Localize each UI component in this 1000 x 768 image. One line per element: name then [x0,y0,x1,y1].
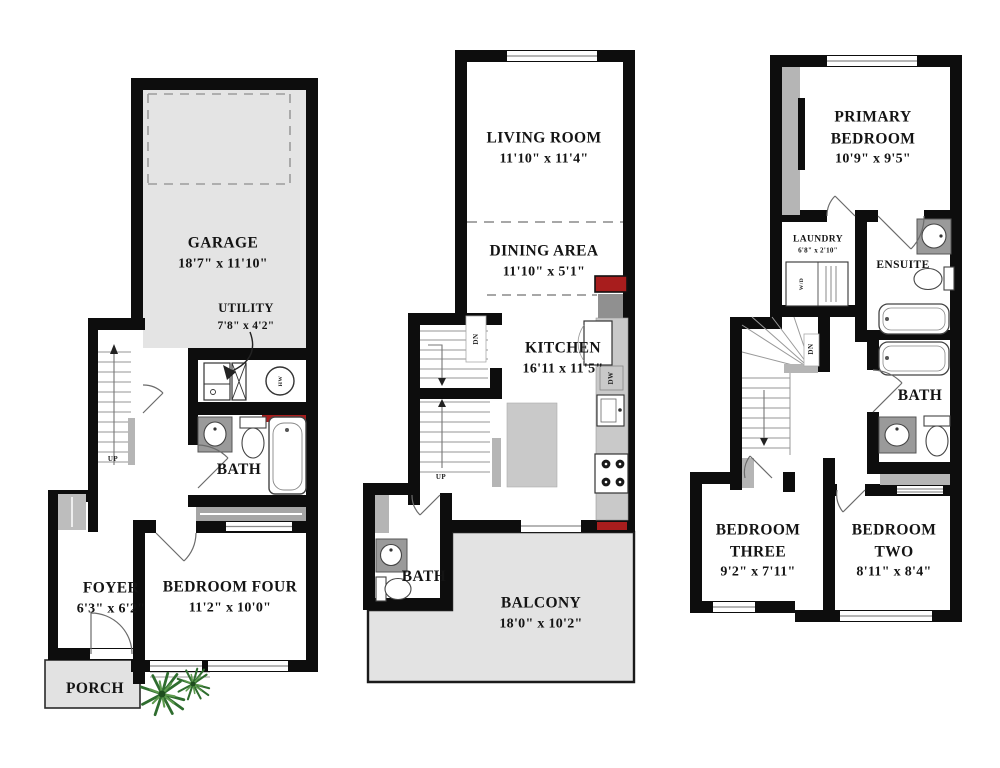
floorplan-canvas: GARAGE 18'7" x 11'10" UTILITY 7'8" x 4'2… [0,0,1000,768]
stairs-up-floor1 [98,344,135,465]
ensuite-label: ENSUITE [876,257,929,273]
stairs-down-label: DN [472,333,480,344]
bath3-label: BATH [898,385,942,407]
kitchen-island [507,403,557,487]
washer-dryer-label: W/D [799,278,805,291]
kitchen-fixtures [507,294,628,520]
bath-closet [375,495,389,533]
sink-fixture [917,219,951,254]
porch-label: PORCH [66,678,124,700]
stairs-up-label: UP [436,473,446,481]
bathtub-fixture [879,342,949,375]
sink-fixture [597,395,624,426]
living-room-label: LIVING ROOM 11'10" x 11'4" [486,127,601,168]
washer-dryer-fixture [786,262,848,306]
utility-label: UTILITY 7'8" x 4'2" [218,300,275,334]
sink-fixture [879,417,916,453]
dishwasher-label: DW [607,371,615,384]
toilet-fixture [924,416,950,456]
laundry-label: LAUNDRY 6'8" x 2'10" [793,233,843,256]
balcony-label: BALCONY 18'0" x 10'2" [499,592,582,633]
bath2-label: BATH [402,566,446,588]
primary-bedroom-label: PRIMARY BEDROOM 10'9" x 9'5" [831,107,916,170]
stove-icon [595,454,628,493]
floor1-plan [45,78,318,715]
kitchen-label: KITCHEN 16'11 x 11'5" [523,337,604,378]
stairs-floor2 [420,316,501,487]
ensuite-fixtures [879,219,954,334]
toilet-fixture [240,417,266,458]
stairs-down-label: DN [807,343,815,354]
bathtub-fixture [879,304,949,334]
bath1-label: BATH [217,459,261,481]
primary-closet [782,67,805,215]
foyer-label: FOYER 6'3" x 6'2" [77,577,146,618]
bedroom-four-label: BEDROOM FOUR 11'2" x 10'0" [163,576,297,617]
plant-icon [178,669,209,700]
garage-label: GARAGE 18'7" x 11'10" [178,232,268,273]
kitchen-counter [598,294,623,318]
sink-fixture [198,417,232,452]
utility-shelf [232,363,246,400]
bath1-fixtures [198,417,306,494]
laundry-fixtures [786,262,848,306]
bathtub-fixture [269,417,306,494]
bedroom-two-label: BEDROOM TWO 8'11" x 8'4" [852,520,937,583]
water-heater-label: HW [278,376,284,387]
bedroom-three-label: BEDROOM THREE 9'2" x 7'11" [716,520,801,583]
closet-band [880,474,950,485]
fireplace [595,276,627,292]
stairs-down-floor3 [742,317,819,455]
dining-area-label: DINING AREA 11'10" x 5'1" [489,240,598,281]
accent-strip [597,522,627,530]
stairs-up-label: UP [108,455,118,463]
